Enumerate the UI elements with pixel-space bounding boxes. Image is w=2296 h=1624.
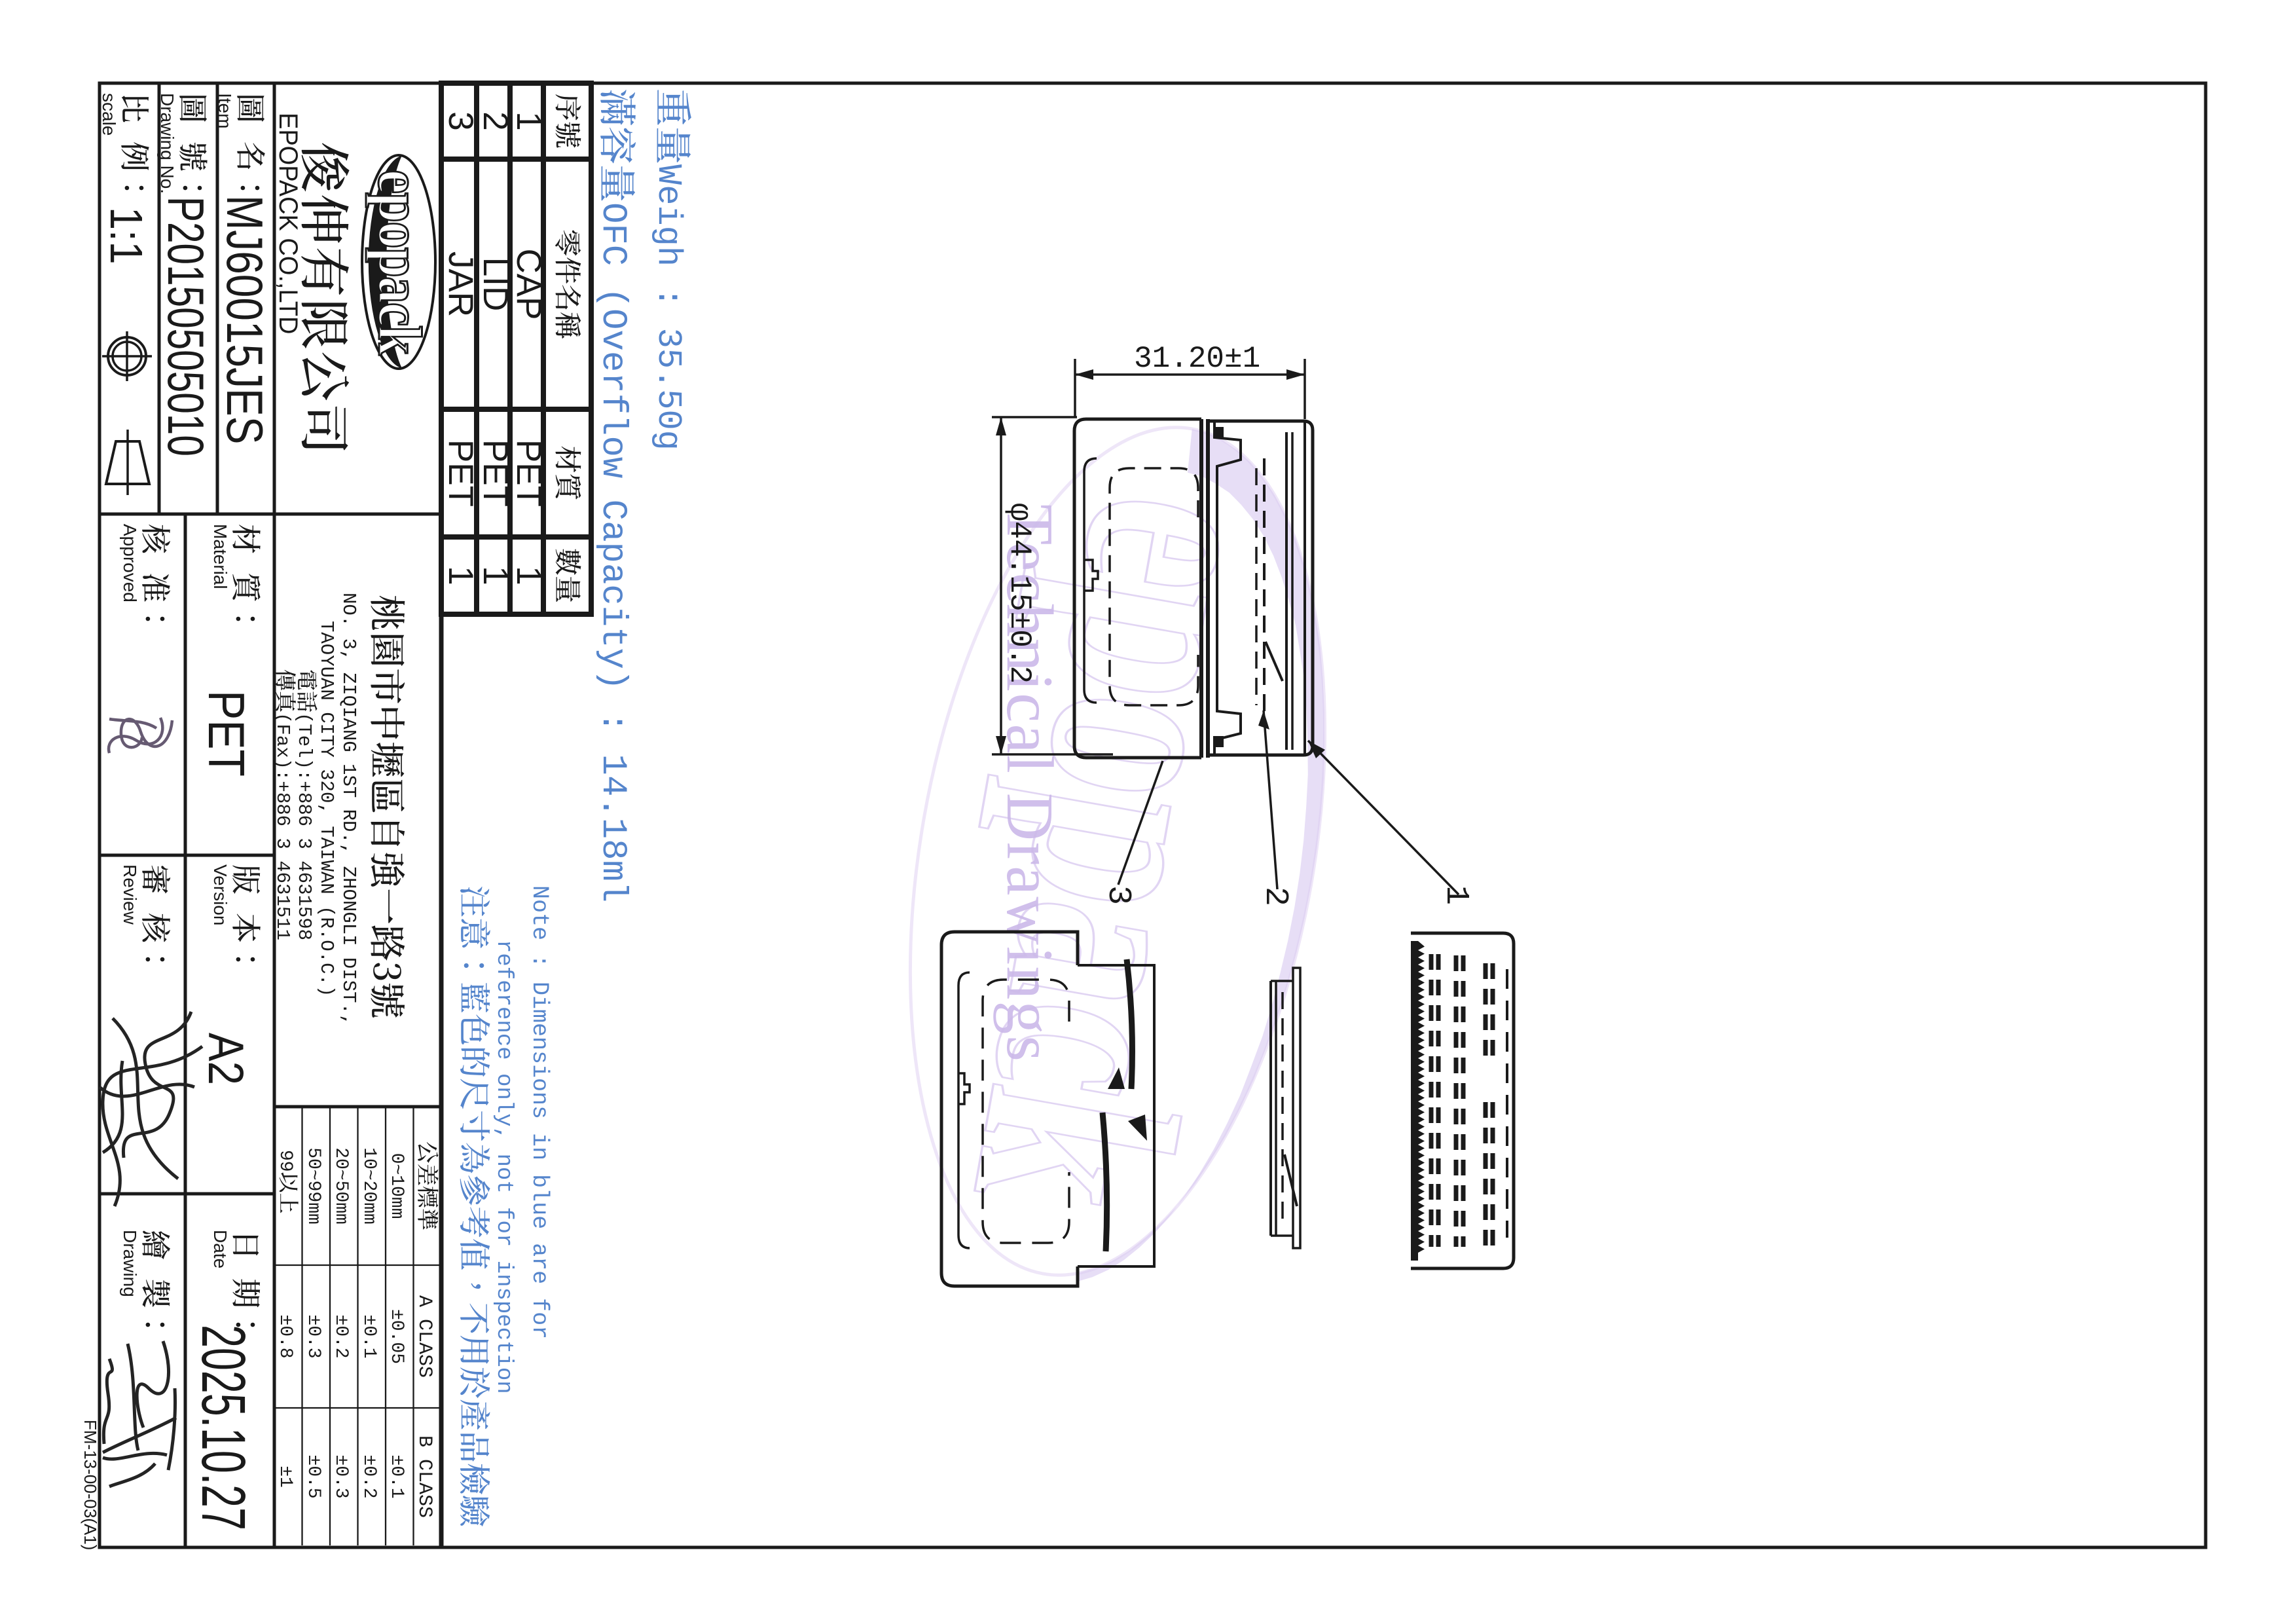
svg-text:Note : Dimensions in blue are: Note : Dimensions in blue are for [526, 885, 553, 1339]
svg-text:±0.3: ±0.3 [303, 1314, 323, 1358]
svg-text:epopack: epopack [365, 170, 433, 356]
svg-text:B CLASS: B CLASS [413, 1435, 435, 1518]
svg-text:±0.8: ±0.8 [275, 1314, 295, 1358]
svg-text:Version: Version [210, 864, 230, 925]
svg-text:1: 1 [509, 111, 548, 130]
svg-text:PET: PET [441, 439, 480, 507]
svg-text:LID: LID [476, 257, 515, 311]
svg-text:φ44.15±0.2: φ44.15±0.2 [1002, 503, 1036, 684]
svg-text:Drawing: Drawing [120, 1230, 140, 1297]
svg-text:2: 2 [476, 111, 515, 130]
svg-text:2025.10.27: 2025.10.27 [189, 1325, 258, 1530]
svg-text:NO. 3, ZIQIANG 1ST RD., ZHONGL: NO. 3, ZIQIANG 1ST RD., ZHONGLI DIST., [338, 593, 359, 1025]
svg-text:1:1: 1:1 [100, 207, 151, 265]
svg-text:20~50mm: 20~50mm [331, 1147, 351, 1225]
svg-text:CAP: CAP [509, 249, 548, 320]
svg-text:Weigh : 35.50g: Weigh : 35.50g [649, 164, 687, 451]
svg-text:1: 1 [1437, 885, 1474, 905]
svg-text:reference only, not for inspec: reference only, not for inspection [491, 940, 516, 1394]
svg-text:1: 1 [509, 566, 548, 585]
svg-text:±0.1: ±0.1 [386, 1454, 407, 1498]
svg-text:1: 1 [441, 566, 480, 585]
svg-text:OFC (Overflow Capacity) : 14.1: OFC (Overflow Capacity) : 14.18ml [592, 202, 632, 902]
svg-text:0~10mm: 0~10mm [386, 1153, 407, 1219]
svg-text:P20150505010: P20150505010 [157, 196, 214, 456]
svg-text:1: 1 [476, 566, 515, 585]
svg-text:PET: PET [476, 439, 515, 507]
svg-text:3: 3 [1099, 885, 1137, 905]
svg-text:MJ60015JES: MJ60015JES [216, 195, 273, 444]
svg-text:Drawing No.: Drawing No. [157, 93, 177, 194]
svg-text:10~20mm: 10~20mm [359, 1147, 379, 1225]
svg-text:scale: scale [99, 93, 119, 136]
svg-text:99: 99 [275, 1150, 295, 1172]
svg-text:A CLASS: A CLASS [413, 1295, 435, 1378]
svg-text:±0.1: ±0.1 [359, 1314, 379, 1358]
svg-text:PET: PET [509, 439, 548, 507]
svg-text:2: 2 [1256, 887, 1294, 906]
svg-text:±0.2: ±0.2 [359, 1454, 379, 1498]
svg-text:FM-13-00-03(A1): FM-13-00-03(A1) [81, 1420, 100, 1550]
svg-text:31.20±1: 31.20±1 [1134, 342, 1260, 376]
svg-text:TAOYUAN CITY 320, TAIWAN (R.O.: TAOYUAN CITY 320, TAIWAN (R.O.C.) [316, 621, 337, 997]
svg-text:±1: ±1 [275, 1466, 295, 1488]
svg-text:A2: A2 [198, 1033, 253, 1085]
svg-text:Material: Material [210, 524, 230, 589]
svg-text:Review: Review [120, 864, 140, 925]
svg-text:±0.3: ±0.3 [331, 1454, 351, 1498]
svg-text:(Tel):+886 3 4631598: (Tel):+886 3 4631598 [293, 712, 315, 940]
svg-text:50~99mm: 50~99mm [303, 1147, 323, 1225]
svg-text:EPOPACK CO.,LTD: EPOPACK CO.,LTD [274, 113, 302, 334]
svg-text:±0.05: ±0.05 [386, 1309, 407, 1364]
svg-text:JAR: JAR [441, 251, 480, 317]
svg-text:Item: Item [215, 93, 235, 128]
svg-text:±0.5: ±0.5 [303, 1454, 323, 1498]
svg-text:PET: PET [198, 690, 254, 777]
svg-text:Approved: Approved [120, 524, 140, 602]
svg-text:±0.2: ±0.2 [331, 1314, 351, 1358]
svg-text:Date: Date [210, 1230, 230, 1268]
svg-text:3: 3 [441, 111, 480, 130]
